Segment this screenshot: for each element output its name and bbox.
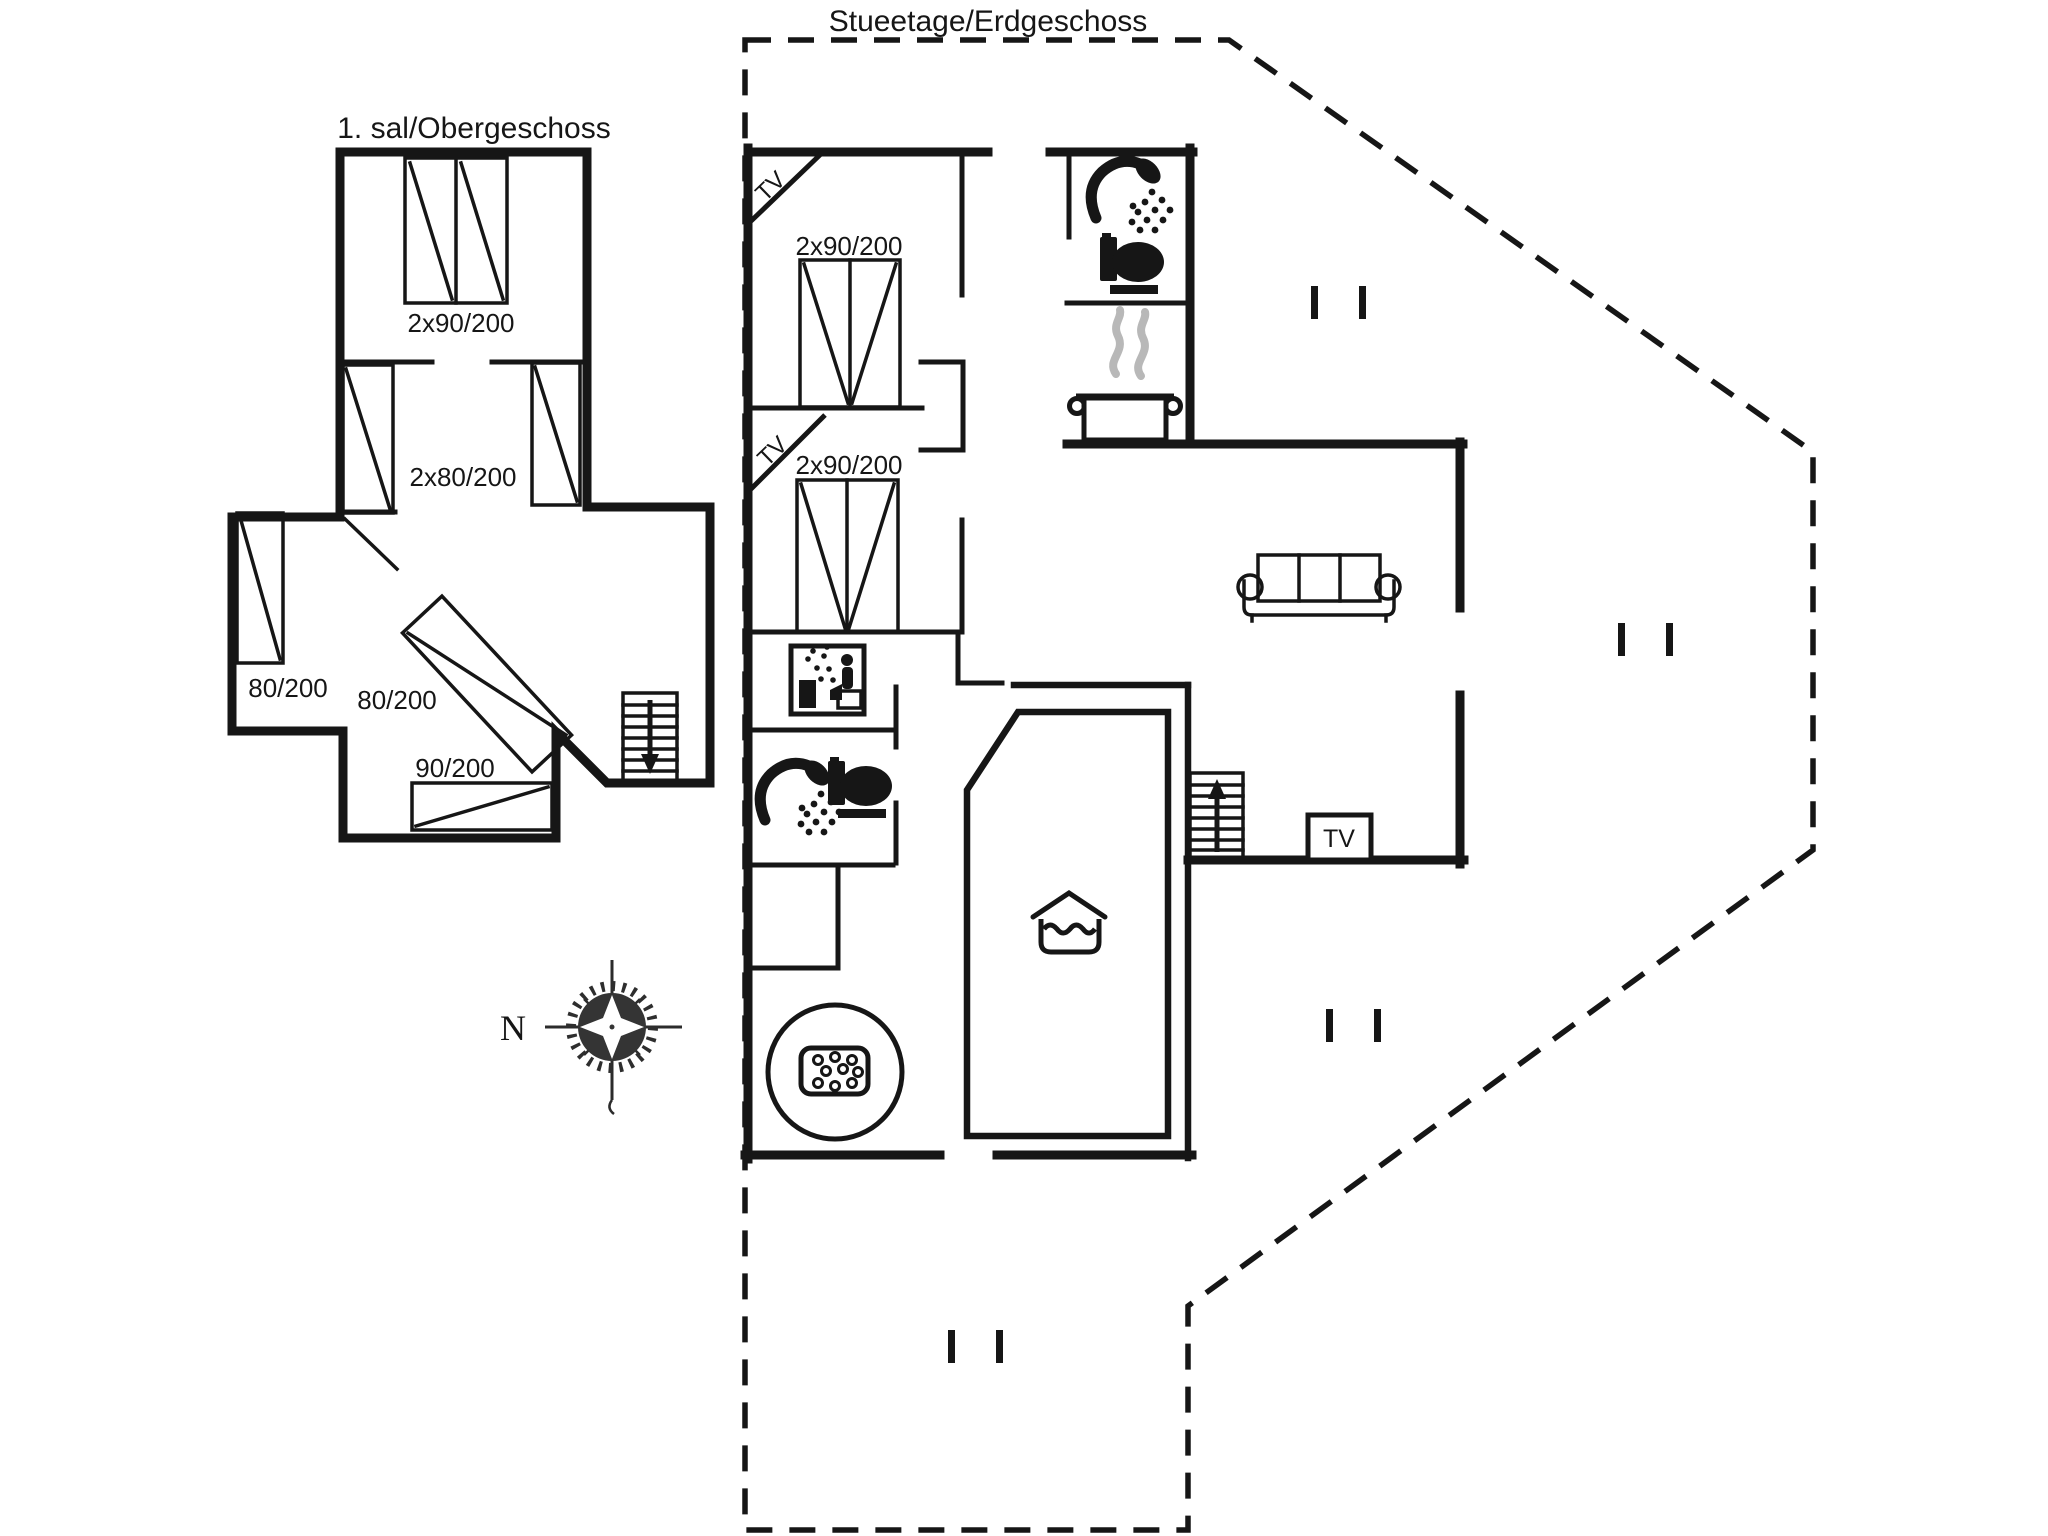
bed-size-label: 80/200 (248, 673, 328, 703)
tv-unit: TV (1308, 815, 1371, 860)
sofa-icon (1238, 555, 1400, 621)
sauna-icon (791, 644, 864, 714)
bed-size-label: 90/200 (415, 753, 495, 783)
compass-rose-icon: N (500, 960, 682, 1114)
single-bed-icon (412, 783, 552, 830)
ground-floor-title: Stueetage/Erdgeschoss (829, 5, 1148, 38)
bed-size-label: 80/200 (357, 685, 437, 715)
stairs-up-icon (1190, 773, 1243, 858)
pool-icon (1033, 893, 1105, 952)
double-bed-icon (800, 260, 900, 407)
upper-floor-title: 1. sal/Obergeschoss (337, 112, 610, 145)
stove-pot-icon (1070, 396, 1181, 440)
tv-corner-label: TV (750, 166, 791, 207)
single-bed-icon (237, 513, 283, 663)
whirlpool-icon (768, 1005, 902, 1139)
upper-floor-plan: 2x90/200 2x80/200 80/200 80/200 90/200 (232, 152, 710, 838)
bed-size-label: 2x90/200 (796, 450, 903, 480)
upper-floor-outer-walls (232, 152, 710, 838)
stairs-down-icon (623, 693, 677, 783)
floor-plan-page: Stueetage/Erdgeschoss 1. sal/Obergeschos… (0, 0, 2048, 1536)
shower-icon (1091, 154, 1173, 234)
toilet-icon (1100, 233, 1164, 294)
floor-plan-drawing: Stueetage/Erdgeschoss 1. sal/Obergeschos… (0, 0, 2048, 1536)
tv-corner-label: TV (752, 431, 793, 472)
single-bed-icon (343, 365, 393, 513)
pool-room-walls (967, 712, 1168, 1136)
tv-corner-shelf: TV (750, 152, 823, 222)
north-label: N (500, 1008, 526, 1048)
door-swing-icon (345, 519, 397, 569)
single-bed-icon (532, 363, 580, 505)
plot-boundary-dashed (745, 40, 1813, 1530)
double-bed-icon (797, 480, 898, 632)
steam-icon (1113, 310, 1145, 376)
double-bed-icon (405, 158, 507, 303)
tv-unit-label: TV (1323, 825, 1355, 853)
bed-size-label: 2x80/200 (410, 462, 517, 492)
bed-size-label: 2x90/200 (408, 308, 515, 338)
ground-floor-plan: TV 2x90/200 TV 2x90/200 (745, 148, 1673, 1363)
bed-size-label: 2x90/200 (796, 231, 903, 261)
toilet-icon (828, 757, 892, 818)
single-bed-rotated-icon (402, 596, 571, 772)
